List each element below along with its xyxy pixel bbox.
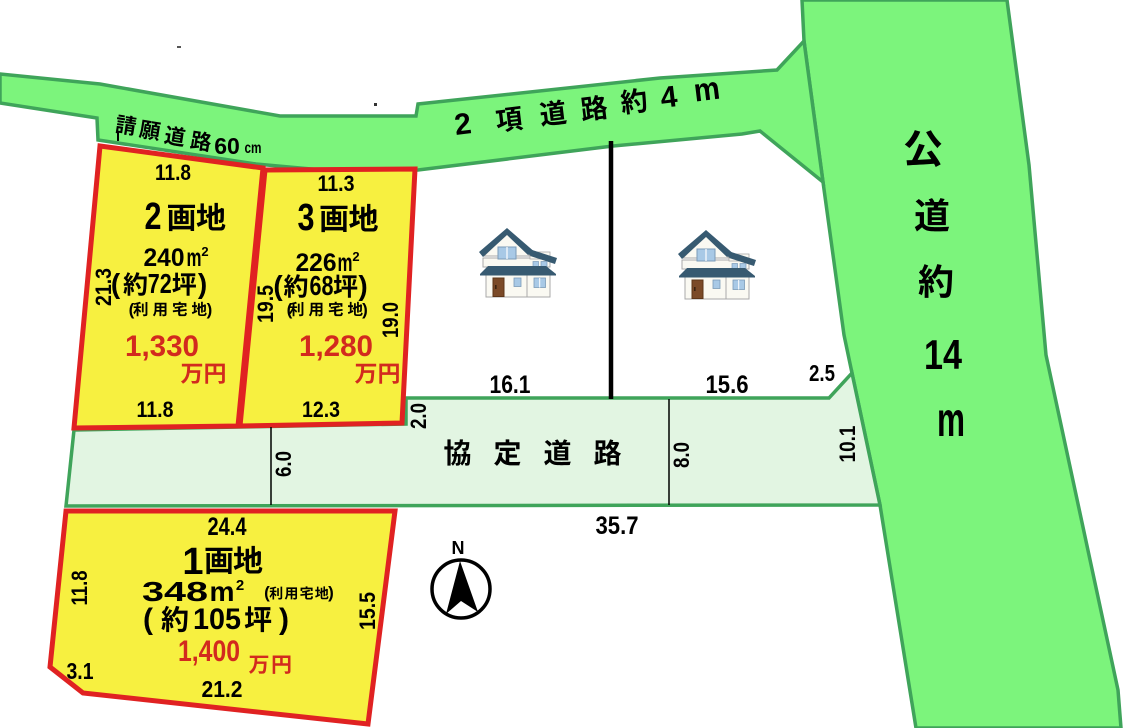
svg-text:(: (	[143, 603, 153, 636]
svg-text:15.6: 15.6	[706, 371, 749, 399]
svg-text:21.3: 21.3	[91, 268, 116, 306]
svg-text:11.8: 11.8	[137, 397, 174, 422]
svg-text:21.2: 21.2	[202, 676, 243, 702]
svg-text:1,330: 1,330	[125, 330, 199, 363]
svg-text:35.7: 35.7	[596, 512, 639, 540]
svg-text:): )	[362, 300, 368, 319]
svg-text:1,280: 1,280	[299, 330, 373, 363]
svg-text:N: N	[452, 538, 465, 558]
svg-text:6.0: 6.0	[271, 451, 296, 477]
svg-text:2: 2	[236, 577, 244, 594]
svg-text:19.5: 19.5	[253, 285, 278, 323]
svg-text:2: 2	[201, 244, 208, 259]
svg-text:m: m	[692, 70, 722, 109]
svg-text:3: 3	[298, 197, 315, 239]
svg-text:2.0: 2.0	[406, 403, 431, 429]
svg-text:11.3: 11.3	[318, 171, 355, 196]
svg-text:m: m	[338, 249, 353, 277]
svg-text:68: 68	[310, 270, 334, 301]
svg-text:24.4: 24.4	[208, 513, 247, 541]
svg-text:1,400: 1,400	[178, 635, 240, 668]
svg-text:10.1: 10.1	[835, 426, 860, 463]
svg-text:15.5: 15.5	[355, 592, 380, 630]
svg-text:105: 105	[193, 603, 241, 636]
svg-text:8.0: 8.0	[669, 442, 694, 468]
svg-text:2.5: 2.5	[809, 360, 835, 386]
svg-text:2: 2	[145, 196, 162, 238]
svg-text:): )	[279, 603, 289, 636]
svg-text:11.8: 11.8	[67, 571, 92, 606]
svg-text:14: 14	[924, 331, 963, 378]
svg-text:11.8: 11.8	[155, 160, 191, 185]
svg-text:19.0: 19.0	[378, 302, 403, 338]
svg-text:16.1: 16.1	[490, 371, 531, 399]
svg-text:): )	[358, 270, 367, 301]
svg-text:72: 72	[148, 268, 172, 299]
svg-text:(: (	[264, 583, 270, 602]
svg-text:60: 60	[214, 133, 240, 159]
svg-text:m: m	[937, 394, 965, 447]
svg-text:12.3: 12.3	[302, 397, 340, 422]
svg-text:): )	[198, 268, 207, 299]
svg-text:3.1: 3.1	[67, 658, 94, 684]
svg-text:): )	[207, 300, 213, 319]
svg-text:2: 2	[352, 249, 359, 264]
svg-text:(: (	[129, 300, 135, 319]
svg-text:cm: cm	[245, 140, 262, 157]
svg-text:): )	[328, 583, 334, 602]
